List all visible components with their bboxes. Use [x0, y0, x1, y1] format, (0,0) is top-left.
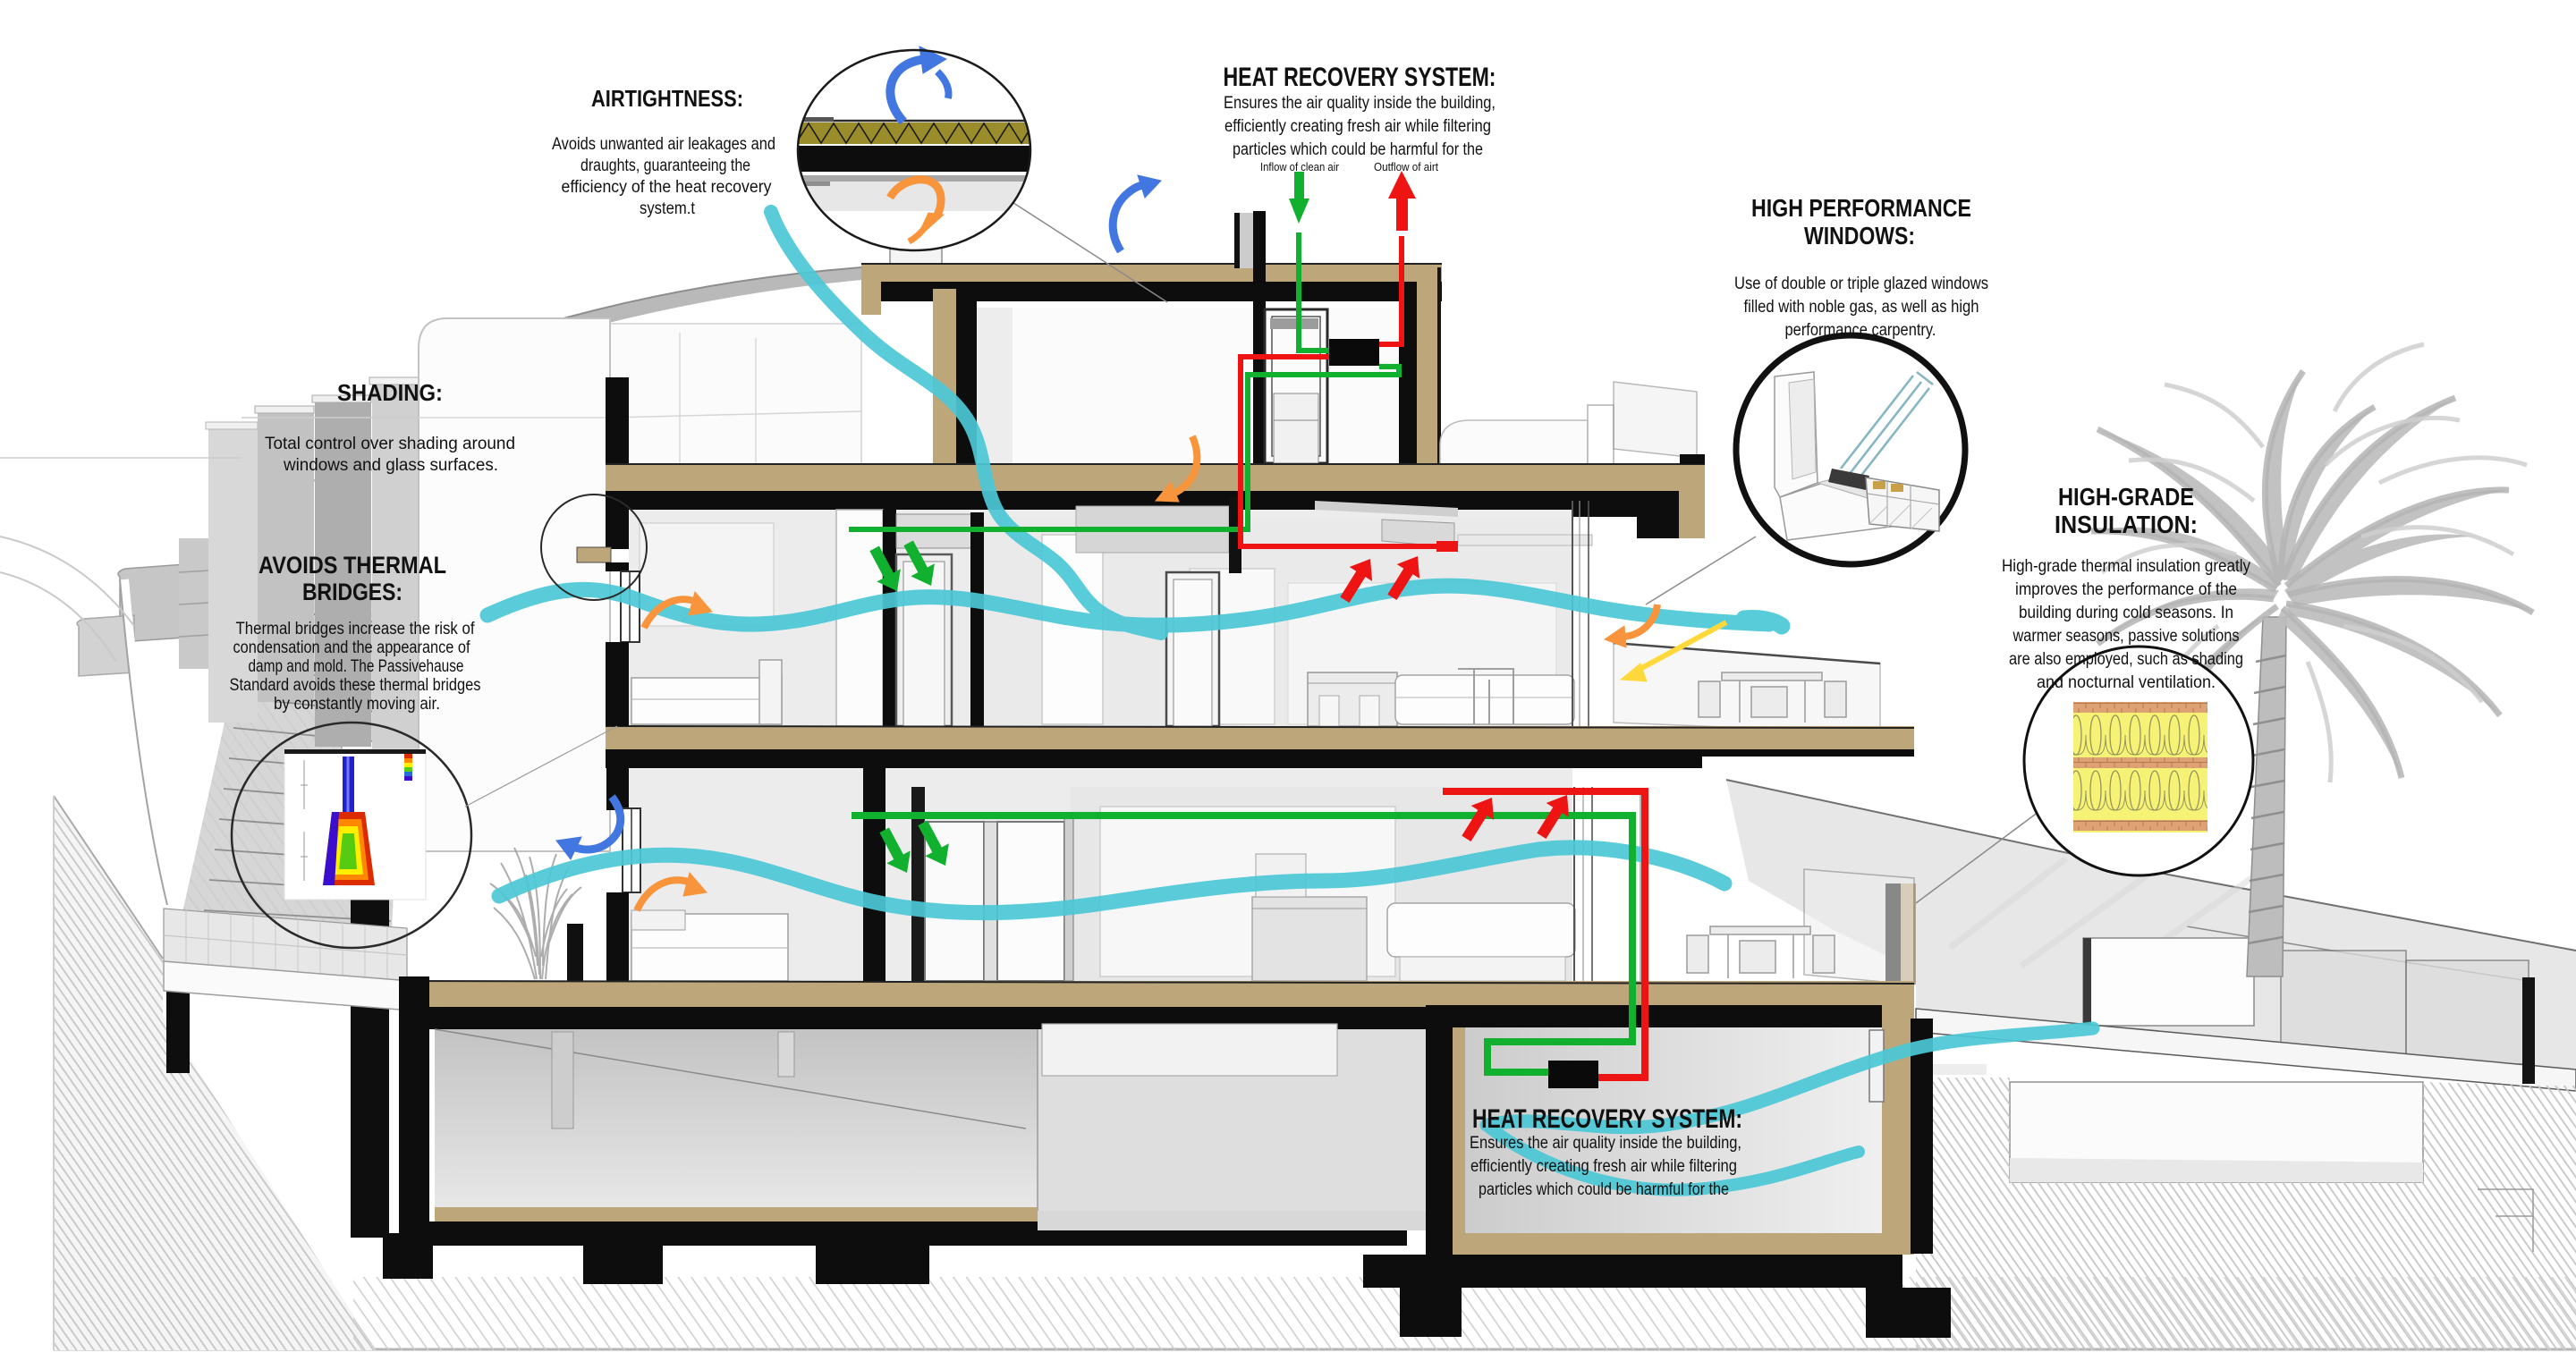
svg-text:building during cold seasons.: building during cold seasons. In [2019, 604, 2233, 622]
svg-text:HEAT RECOVERY SYSTEM:: HEAT RECOVERY SYSTEM: [1224, 63, 1496, 92]
svg-text:damp and mold. The Passivehaus: damp and mold. The Passivehause [249, 657, 464, 676]
svg-text:are also employed, such as sha: are also employed, such as shading [2009, 650, 2243, 669]
svg-text:particles which could be harmf: particles which could be harmful for the [1233, 140, 1483, 159]
svg-text:HIGH PERFORMANCE: HIGH PERFORMANCE [1751, 194, 1971, 222]
svg-text:AIRTIGHTNESS:: AIRTIGHTNESS: [591, 85, 743, 112]
svg-text:improves the performance of th: improves the performance of the [2015, 580, 2237, 599]
svg-text:efficiently creating fresh air: efficiently creating fresh air while fil… [1470, 1157, 1737, 1176]
svg-text:WINDOWS:: WINDOWS: [1804, 222, 1915, 249]
svg-text:BRIDGES:: BRIDGES: [302, 579, 402, 605]
svg-text:Inflow of clean air: Inflow of clean air [1260, 160, 1340, 173]
svg-text:by constantly moving air.: by constantly moving air. [274, 695, 440, 714]
svg-text:draughts, guaranteeing the: draughts, guaranteeing the [580, 156, 750, 175]
svg-text:High-grade thermal insulation: High-grade thermal insulation greatly [2002, 557, 2250, 576]
svg-text:warmer seasons, passive soluti: warmer seasons, passive solutions [2012, 627, 2240, 646]
svg-text:Standard avoids these thermal: Standard avoids these thermal bridges [230, 676, 481, 695]
svg-text:efficiency of the heat recover: efficiency of the heat recovery [562, 178, 772, 197]
svg-text:filled with noble gas, as well: filled with noble gas, as well as high [1744, 298, 1979, 317]
svg-text:Ensures the air quality inside: Ensures the air quality inside the build… [1224, 94, 1496, 113]
svg-text:particles which could be harmf: particles which could be harmful for the [1479, 1180, 1729, 1199]
svg-text:performance carpentry.: performance carpentry. [1785, 321, 1936, 340]
svg-text:SHADING:: SHADING: [337, 379, 443, 406]
svg-text:Use of double or triple glazed: Use of double or triple glazed windows [1734, 275, 1988, 293]
svg-text:INSULATION:: INSULATION: [2055, 511, 2198, 538]
svg-text:windows and glass surfaces.: windows and glass surfaces. [283, 456, 498, 475]
svg-text:Total control over shading aro: Total control over shading around [265, 435, 515, 453]
svg-text:HIGH-GRADE: HIGH-GRADE [2058, 483, 2194, 511]
svg-text:and nocturnal ventilation.: and nocturnal ventilation. [2037, 673, 2216, 692]
svg-text:Thermal bridges increase the r: Thermal bridges increase the risk of [236, 620, 476, 638]
svg-text:efficiently creating fresh air: efficiently creating fresh air while fil… [1224, 117, 1491, 136]
svg-text:HEAT RECOVERY SYSTEM:: HEAT RECOVERY SYSTEM: [1472, 1104, 1742, 1134]
svg-text:Ensures the air quality inside: Ensures the air quality inside the build… [1470, 1134, 1741, 1153]
svg-text:Outflow of airt: Outflow of airt [1374, 160, 1438, 173]
svg-text:condensation and the appearanc: condensation and the appearance of [233, 638, 471, 657]
svg-text:AVOIDS THERMAL: AVOIDS THERMAL [258, 552, 446, 579]
svg-text:system.t: system.t [640, 199, 696, 218]
svg-text:Avoids unwanted air leakages a: Avoids unwanted air leakages and [552, 135, 775, 154]
